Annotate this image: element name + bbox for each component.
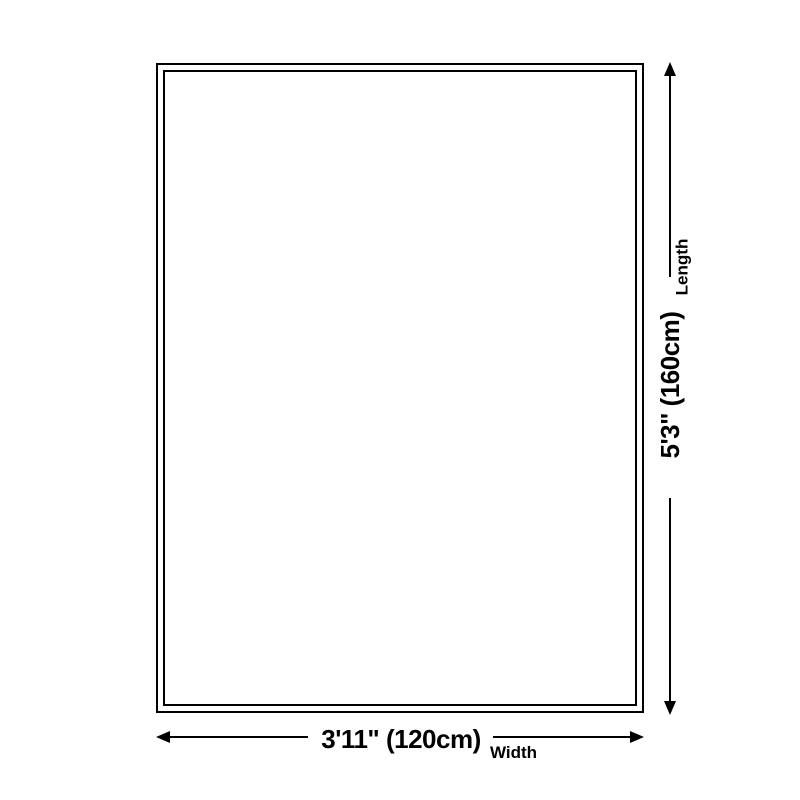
width-value: 3'11" (120cm) — [321, 726, 480, 752]
width-label: Width — [490, 744, 537, 761]
length-arrow-up-icon — [664, 62, 676, 76]
length-value: 5'3" (160cm) — [657, 312, 683, 459]
width-dimension-line-right — [493, 736, 630, 738]
rug-outline-inner — [163, 70, 637, 706]
rug-outline — [156, 63, 644, 713]
length-dimension-line-top — [669, 75, 671, 277]
dimension-diagram: Length 5'3" (160cm) 3'11" (120cm) Width — [0, 0, 800, 800]
length-arrow-down-icon — [664, 701, 676, 715]
length-label: Length — [674, 239, 691, 296]
width-arrow-right-icon — [630, 731, 644, 743]
width-dimension-line-left — [170, 736, 308, 738]
width-arrow-left-icon — [156, 731, 170, 743]
length-dimension-line-bottom — [669, 498, 671, 701]
